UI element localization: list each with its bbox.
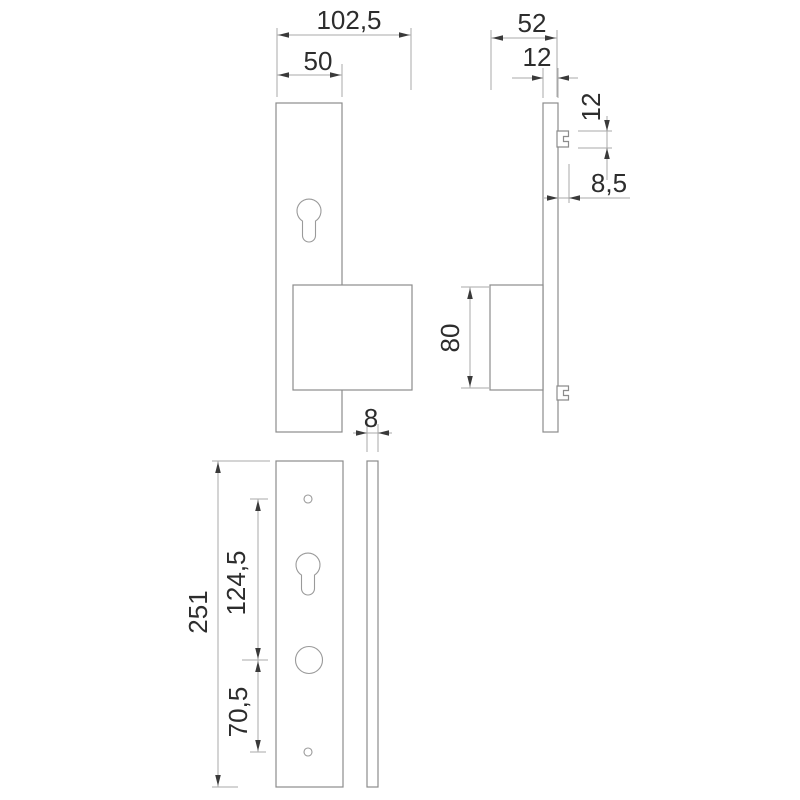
arrowhead [278, 72, 289, 78]
arrowhead [467, 288, 473, 299]
dim-lower-plate-thickness: 8 [353, 403, 392, 452]
dim-side-plate-thickness: 12 [512, 42, 578, 98]
arrowhead [399, 32, 410, 38]
screw-hole-bottom [304, 748, 312, 756]
arrowhead [378, 430, 389, 436]
dim-handle-block-height: 80 [435, 287, 489, 388]
handle-block-side [490, 285, 543, 390]
arrowhead [604, 148, 610, 159]
dim-clip-height: 12 [576, 93, 612, 180]
dim-label-lower-hole-spacing: 70,5 [223, 687, 253, 738]
dim-label-side-overall-depth: 52 [518, 8, 547, 38]
technical-drawing: 102,5 50 52 12 12 [0, 0, 800, 800]
arrowhead [558, 75, 569, 81]
arrowhead [255, 648, 261, 659]
arrowhead [569, 195, 580, 201]
handle-spindle-hole [296, 647, 323, 674]
clip-tab-top [557, 131, 569, 147]
arrowhead [255, 500, 261, 511]
dim-label-plate-length: 251 [183, 590, 213, 633]
side-plate-upper [543, 103, 558, 432]
arrowhead [532, 75, 543, 81]
arrowhead [467, 376, 473, 387]
front-plate-lower [276, 461, 343, 787]
dim-label-clip-offset: 8,5 [591, 168, 627, 198]
dim-label-clip-height: 12 [576, 93, 606, 122]
upper-side-view [490, 103, 569, 432]
dim-label-lower-plate-thickness: 8 [364, 403, 378, 433]
lower-front-view [276, 461, 343, 787]
arrowhead [215, 775, 221, 786]
dim-label-upper-hole-spacing: 124,5 [221, 550, 251, 615]
drawing-canvas: 102,5 50 52 12 12 [0, 0, 800, 800]
arrowhead [255, 740, 261, 751]
dim-upper-hole-spacing: 124,5 [221, 499, 268, 660]
dim-label-front-plate-width: 50 [304, 46, 333, 76]
handle-block-front [293, 285, 412, 390]
side-plate-lower [367, 461, 378, 787]
dim-lower-hole-spacing: 70,5 [223, 660, 266, 752]
arrowhead [278, 32, 289, 38]
dim-label-front-overall-width: 102,5 [316, 5, 381, 35]
arrowhead [492, 35, 503, 41]
dim-label-side-plate-thickness: 12 [523, 42, 552, 72]
screw-hole-top [304, 495, 312, 503]
lower-side-view [367, 461, 378, 787]
arrowhead [255, 661, 261, 672]
dim-label-handle-block-height: 80 [435, 324, 465, 353]
clip-tab-bottom [557, 386, 569, 400]
arrowhead [215, 462, 221, 473]
upper-front-view [276, 103, 412, 432]
arrowhead [545, 35, 556, 41]
dim-front-overall-width: 102,5 [277, 5, 411, 97]
dim-front-plate-width: 50 [277, 46, 342, 97]
